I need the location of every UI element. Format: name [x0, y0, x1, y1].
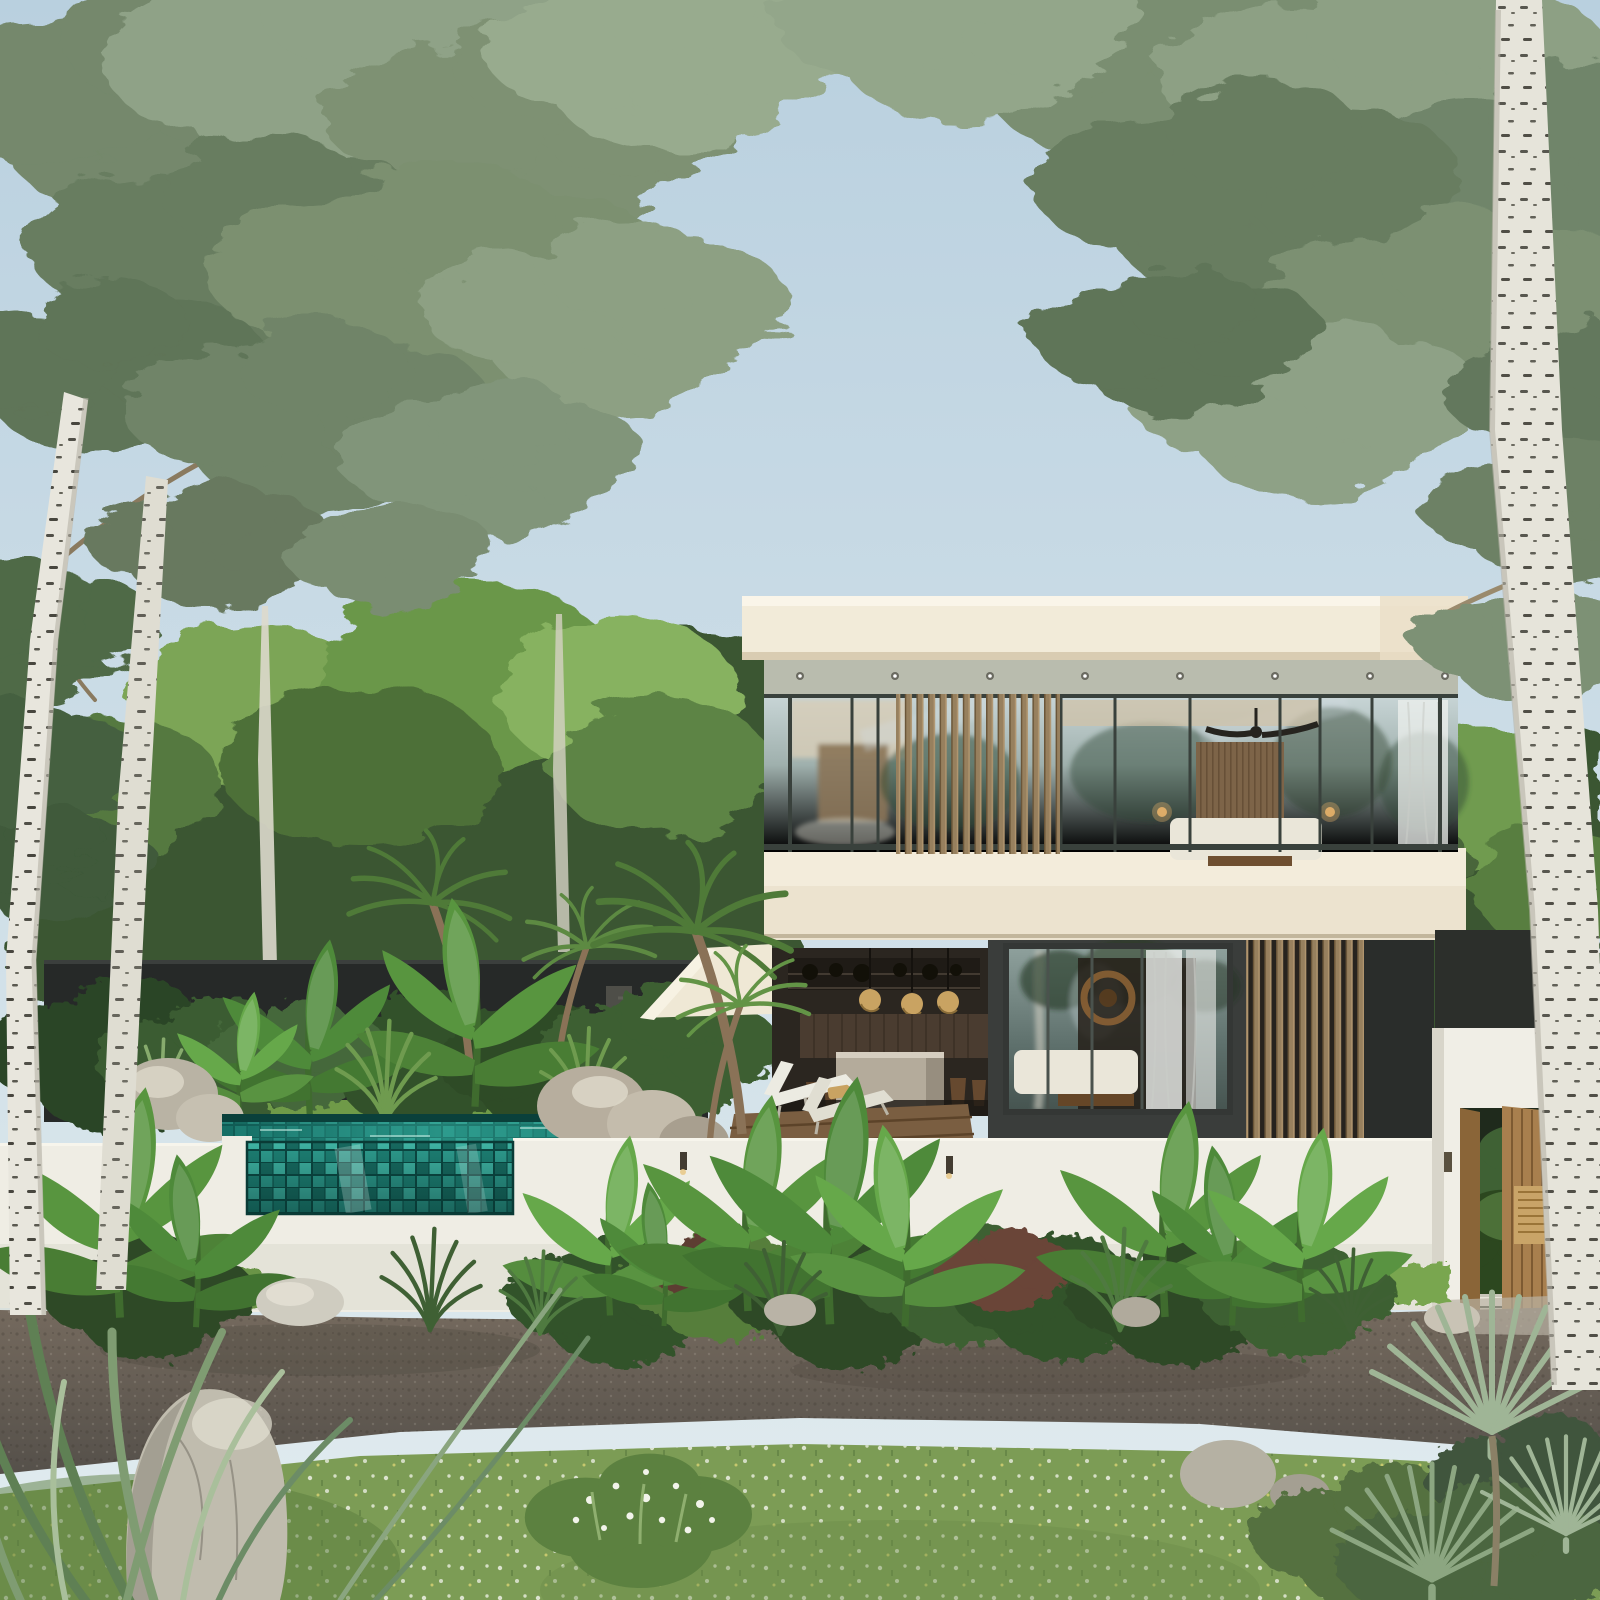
bed-bench	[1058, 1094, 1134, 1106]
roof-soffit	[764, 660, 1458, 694]
upper-bed	[1170, 818, 1322, 860]
lower-volume	[988, 928, 1434, 1166]
lower-louvers	[1246, 938, 1364, 1142]
upper-floor	[764, 660, 1469, 866]
lower-bed	[1014, 1050, 1138, 1094]
roof-slab	[742, 596, 1468, 660]
villa-exterior-render	[0, 0, 1600, 1600]
privacy-wall-coping	[44, 960, 708, 964]
hedge-rock	[764, 1294, 816, 1326]
bedside-lamp	[1157, 807, 1167, 817]
hedge-rock	[1112, 1297, 1160, 1327]
pool-glass-window	[247, 1142, 513, 1214]
right-rock	[1180, 1440, 1276, 1508]
bedside-lamp	[1325, 807, 1335, 817]
scene-canvas	[0, 0, 1600, 1600]
sheer-curtains	[1146, 950, 1216, 1110]
side-wall-dark	[1362, 928, 1434, 1146]
balcony-slab	[764, 848, 1466, 940]
upper-bed-bench	[1208, 856, 1292, 866]
